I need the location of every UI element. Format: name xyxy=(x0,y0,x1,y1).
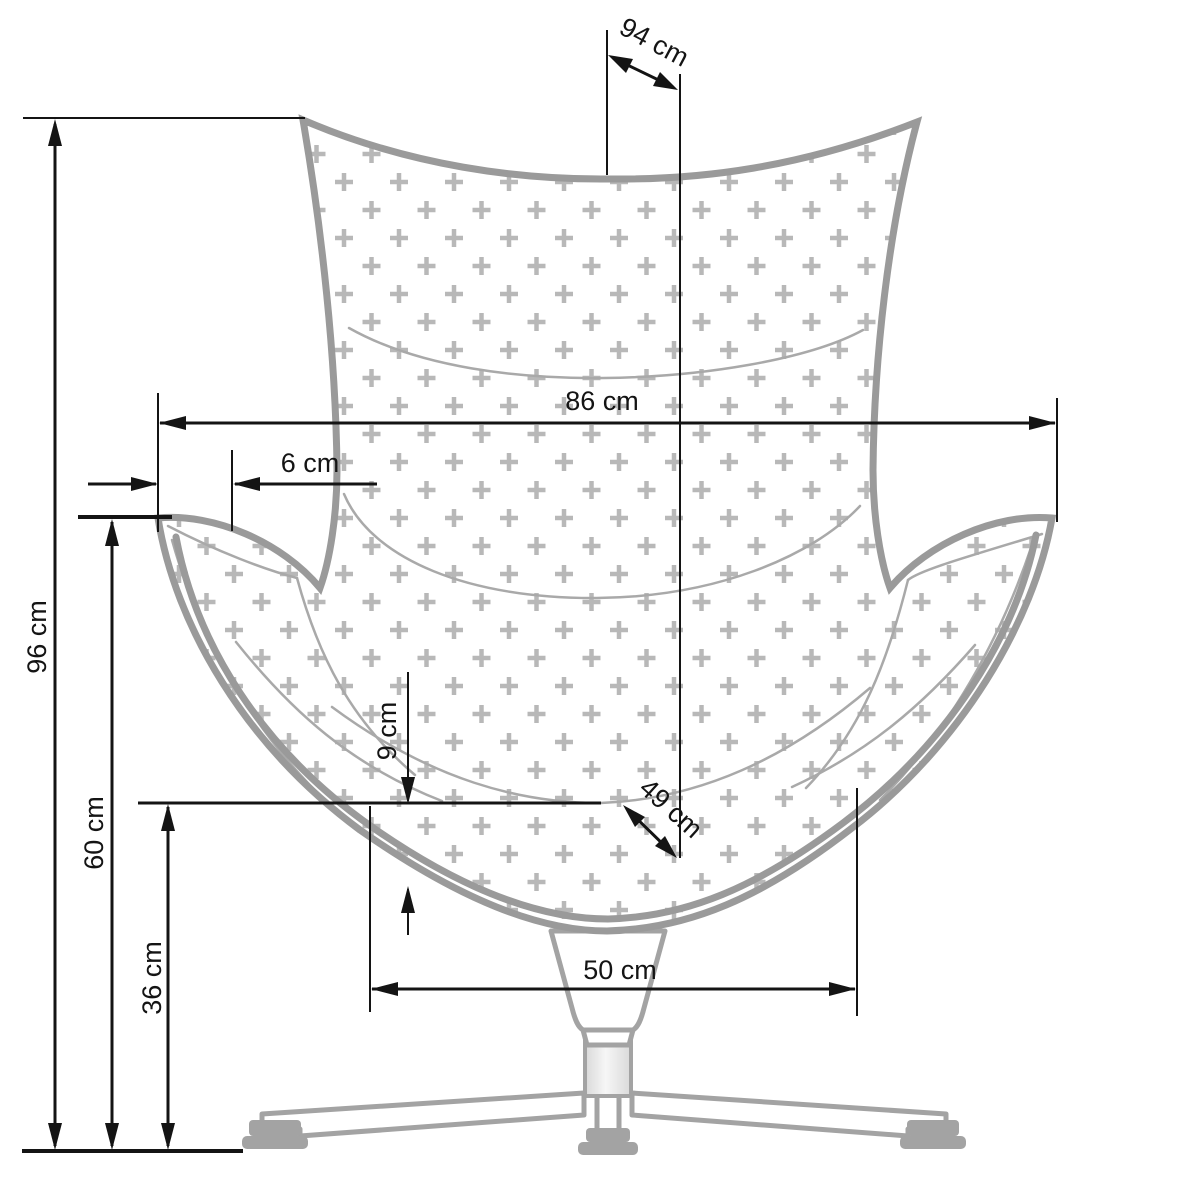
dimension-label-9cm: 9 cm xyxy=(372,702,402,761)
foot-center-base xyxy=(578,1142,638,1155)
arrowhead xyxy=(401,886,415,913)
arrowhead xyxy=(233,477,260,491)
dimension-label-96cm: 96 cm xyxy=(22,600,52,674)
foot-center xyxy=(586,1128,630,1142)
foot-right-base xyxy=(900,1136,966,1149)
arrowhead xyxy=(1029,416,1056,430)
pedestal-column xyxy=(585,1042,631,1096)
dimension-label-6cm: 6 cm xyxy=(281,448,340,478)
foot-left-base xyxy=(242,1136,308,1149)
dimension-label-86cm: 86 cm xyxy=(565,386,639,416)
arrowhead xyxy=(105,519,119,546)
chair-shell xyxy=(158,120,1052,931)
arrowhead xyxy=(371,982,398,996)
upholstery-plus-pattern xyxy=(158,120,1052,931)
arrowhead xyxy=(161,804,175,831)
base-leg-center xyxy=(597,1095,619,1131)
diagram-svg: 94 cm 86 cm 6 cm 96 cm 60 cm xyxy=(0,0,1200,1187)
pedestal-funnel-lip xyxy=(583,1030,633,1045)
dimension-label-60cm: 60 cm xyxy=(79,796,109,870)
base-leg-left xyxy=(262,1093,584,1136)
arrowhead xyxy=(829,982,856,996)
arrowhead xyxy=(161,1123,175,1150)
dimension-armrest-60: 60 cm xyxy=(78,517,172,1150)
arrowhead xyxy=(48,119,62,146)
arrowhead xyxy=(608,55,633,73)
arrowhead xyxy=(159,416,186,430)
base-leg-right xyxy=(632,1093,946,1136)
dimension-seat-height-36: 36 cm xyxy=(137,804,175,1150)
arrowhead xyxy=(653,72,678,90)
foot-left xyxy=(249,1120,301,1136)
arrowhead xyxy=(105,1123,119,1150)
chair-dimension-diagram: 94 cm 86 cm 6 cm 96 cm 60 cm xyxy=(0,0,1200,1187)
arrowhead xyxy=(48,1123,62,1150)
dimension-label-36cm: 36 cm xyxy=(137,941,167,1015)
dimension-label-50cm: 50 cm xyxy=(583,955,657,985)
foot-right xyxy=(907,1120,959,1136)
arrowhead xyxy=(131,477,158,491)
